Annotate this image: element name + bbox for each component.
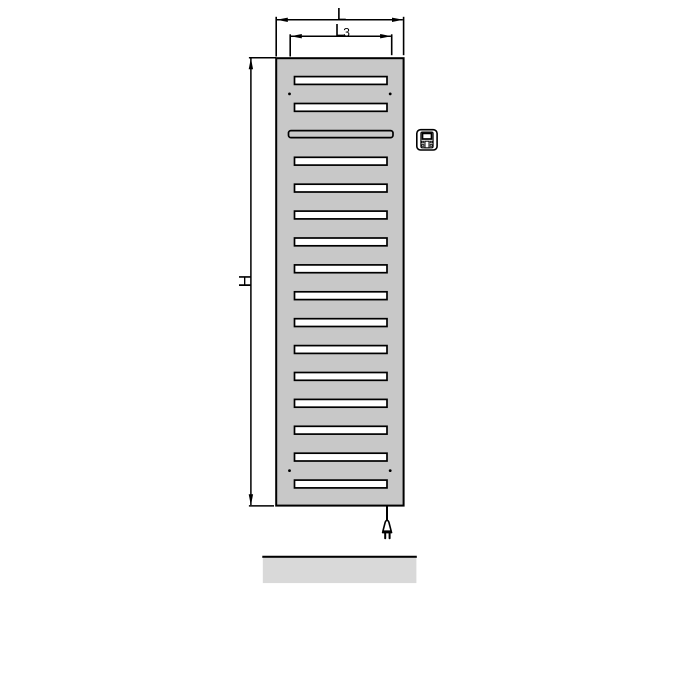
svg-text:H: H	[235, 275, 255, 288]
svg-text:3: 3	[343, 25, 350, 39]
